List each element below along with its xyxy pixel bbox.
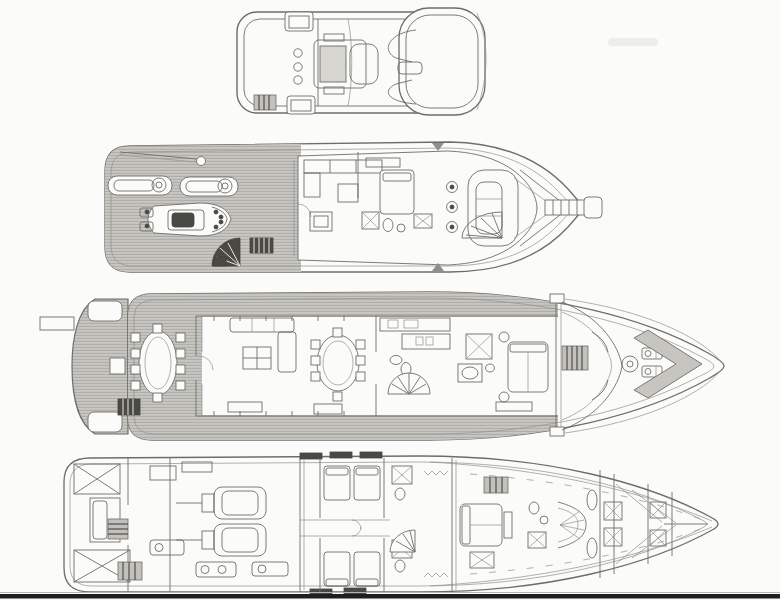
wet-bar-hatch	[118, 399, 140, 415]
platform-steps-top	[88, 301, 122, 321]
aft-deck-oval-table	[139, 331, 177, 395]
skylounge-superstructure	[298, 151, 537, 265]
kayak-port	[108, 176, 172, 195]
guest-bed	[324, 552, 350, 586]
foredeck-hatch	[562, 346, 588, 370]
sun-pad-forward	[287, 96, 315, 114]
sun-pad-aft	[285, 12, 313, 31]
platform-hatch	[110, 358, 125, 374]
scanned-deck-plan-page	[0, 0, 780, 600]
scan-smudge	[608, 38, 658, 46]
dining-table	[317, 335, 359, 391]
ladder-hatch-2	[118, 562, 142, 580]
bottom-scan-band	[0, 594, 780, 599]
tender-pwc	[140, 203, 231, 236]
kayak-starboard	[180, 177, 238, 196]
stair-hatch	[254, 95, 276, 110]
bowsprit-mast	[545, 197, 602, 218]
boat-deck-pilothouse	[105, 142, 602, 274]
guest-bed	[324, 466, 350, 500]
guest-bed	[354, 552, 380, 586]
platform-steps-bottom	[88, 412, 122, 432]
ladder-hatch-1	[108, 519, 128, 539]
yacht-deck-plans-drawing	[0, 0, 780, 600]
companionway-hatch	[250, 238, 273, 253]
hardtop-brow	[399, 8, 485, 115]
guest-bed	[354, 466, 380, 500]
passerelle	[40, 317, 74, 330]
